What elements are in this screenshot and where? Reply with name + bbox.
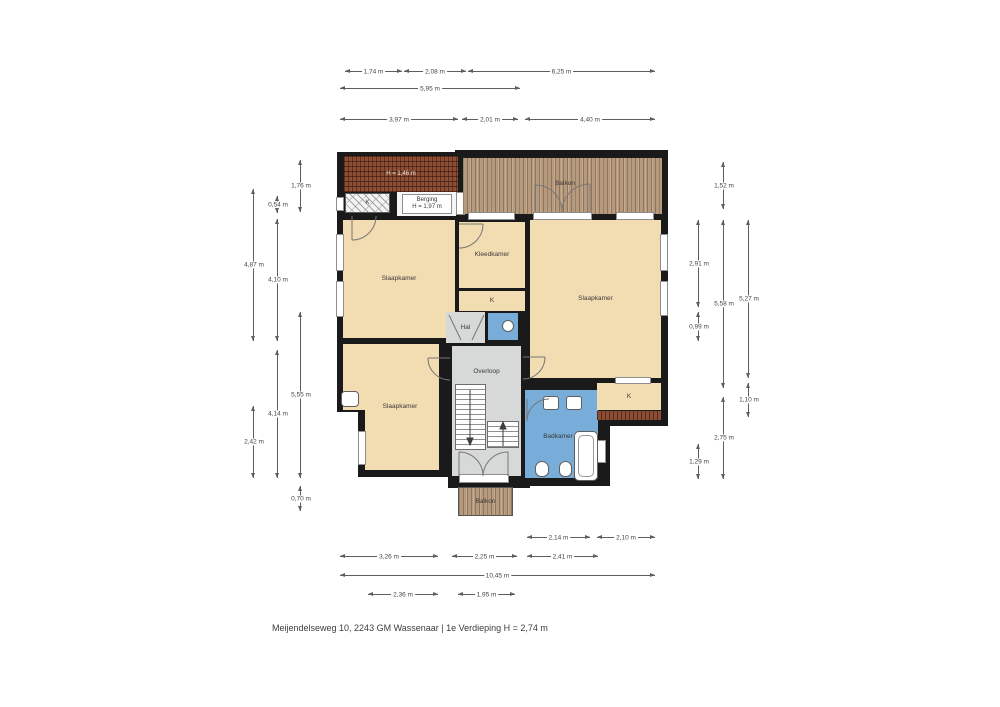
- dimension-label: 4,10 m: [266, 276, 290, 283]
- window-dressing-top: [468, 212, 515, 220]
- dimension-line: 5,58 m: [723, 220, 724, 388]
- dimension-line: 5,95 m: [340, 88, 520, 89]
- balcony-bottom-label: Balkon: [476, 498, 496, 505]
- bedroom-right-label: Slaapkamer: [578, 295, 613, 302]
- dimension-label: 1,10 m: [737, 396, 761, 403]
- dimension-line: 2,10 m: [597, 537, 655, 538]
- hall: Hal: [446, 312, 485, 343]
- bedroom-top-left: Slaapkamer: [343, 220, 455, 338]
- dimension-label: 3,97 m: [387, 116, 411, 123]
- bathtub: [574, 431, 598, 481]
- window-left-lower: [358, 431, 366, 465]
- dimension-label: 1,29 m: [687, 458, 711, 465]
- dimension-line: 2,42 m: [253, 406, 254, 478]
- dimension-label: 2,42 m: [242, 438, 266, 445]
- dimension-line: 2,01 m: [462, 119, 518, 120]
- dimension-line: 1,29 m: [698, 444, 699, 479]
- berging-label-box: Berging H = 1,97 m: [402, 194, 452, 214]
- window-above-closet-right: [615, 377, 651, 384]
- roof-area: H = 1,46 m: [344, 156, 458, 192]
- stair-flight-main: [455, 384, 486, 450]
- floorplan-page: { "footer": "Meijendelseweg 10, 2243 GM …: [0, 0, 1000, 707]
- dimension-line: 2,14 m: [527, 537, 590, 538]
- dimension-line: 1,10 m: [748, 383, 749, 417]
- dimension-label: 2,10 m: [614, 534, 638, 541]
- berging-name: Berging: [417, 197, 438, 205]
- window-right-2: [660, 281, 668, 316]
- window-balcony-top-right: [616, 212, 654, 220]
- dimension-label: 5,58 m: [712, 300, 736, 307]
- dimension-line: 6,25 m: [468, 71, 655, 72]
- dimension-line: 4,10 m: [277, 219, 278, 341]
- dimension-line: 2,25 m: [452, 556, 517, 557]
- roof-height-label: H = 1,46 m: [344, 171, 458, 177]
- dimension-line: 4,87 m: [253, 189, 254, 341]
- dimension-line: 2,08 m: [404, 71, 466, 72]
- closet-top-left-label: K: [365, 199, 369, 206]
- dimension-line: 10,45 m: [340, 575, 655, 576]
- window-left-1: [336, 234, 344, 271]
- dimension-label: 2,14 m: [547, 534, 571, 541]
- dimension-label: 3,26 m: [377, 553, 401, 560]
- dimension-label: 2,75 m: [712, 434, 736, 441]
- dimension-line: 0,54 m: [277, 196, 278, 213]
- balcony-top-label: Balkon: [530, 180, 600, 187]
- dimension-label: 4,87 m: [242, 261, 266, 268]
- dimension-line: 4,14 m: [277, 350, 278, 478]
- sink-bathroom-1: [543, 396, 559, 410]
- bedroom-bottom-left-label: Slaapkamer: [355, 403, 445, 410]
- dimension-label: 4,14 m: [266, 410, 290, 417]
- dimension-label: 2,36 m: [391, 591, 415, 598]
- dimension-label: 1,74 m: [362, 68, 386, 75]
- bedroom-top-left-label: Slaapkamer: [382, 275, 417, 282]
- dimension-label: 0,70 m: [289, 495, 313, 502]
- dimension-line: 2,75 m: [723, 397, 724, 479]
- dimension-label: 2,91 m: [687, 260, 711, 267]
- dimension-label: 0,99 m: [687, 323, 711, 330]
- dimension-line: 0,99 m: [698, 312, 699, 341]
- dimension-label: 5,27 m: [737, 295, 761, 302]
- dimension-label: 2,01 m: [478, 116, 502, 123]
- closet-middle: K: [459, 291, 525, 311]
- window-left-2: [336, 281, 344, 317]
- dimension-label: 2,41 m: [551, 553, 575, 560]
- closet-right: K: [597, 383, 661, 410]
- closet-middle-label: K: [490, 297, 494, 304]
- dimension-line: 1,76 m: [300, 160, 301, 212]
- address-caption: Meijendelseweg 10, 2243 GM Wassenaar | 1…: [272, 623, 548, 633]
- dressing-room: Kleedkamer: [459, 222, 525, 288]
- dimension-label: 2,25 m: [473, 553, 497, 560]
- dimension-label: 2,08 m: [423, 68, 447, 75]
- closet-right-label: K: [627, 393, 631, 400]
- dimension-line: 1,74 m: [345, 71, 402, 72]
- berging-height: H = 1,97 m: [412, 204, 442, 212]
- bidet-bathroom: [559, 461, 572, 477]
- french-door-bottom: [459, 474, 509, 483]
- toilet-wc: [502, 320, 514, 332]
- hall-label: Hal: [461, 324, 471, 331]
- dimension-label: 10,45 m: [484, 572, 512, 579]
- dimension-line: 2,41 m: [527, 556, 598, 557]
- dimension-line: 3,26 m: [340, 556, 438, 557]
- dressing-room-label: Kleedkamer: [475, 251, 510, 258]
- window-right-1: [660, 234, 668, 271]
- dimension-line: 3,97 m: [340, 119, 458, 120]
- dimension-label: 1,76 m: [289, 182, 313, 189]
- roof-strip-right: [597, 411, 661, 420]
- dimension-line: 0,70 m: [300, 486, 301, 511]
- dimension-line: 4,40 m: [525, 119, 655, 120]
- bedroom-right: Slaapkamer: [530, 220, 661, 378]
- dimension-label: 6,25 m: [550, 68, 574, 75]
- dimension-line: 2,91 m: [698, 220, 699, 307]
- french-door-top: [533, 212, 592, 220]
- window-left-berging: [336, 197, 344, 211]
- landing-label: Overloop: [452, 368, 521, 375]
- dimension-label: 5,95 m: [418, 85, 442, 92]
- window-bathroom-right: [597, 440, 606, 463]
- dimension-label: 0,54 m: [266, 201, 290, 208]
- dimension-line: 1,52 m: [723, 162, 724, 209]
- dimension-line: 2,36 m: [368, 594, 438, 595]
- dimension-label: 4,40 m: [578, 116, 602, 123]
- closet-top-left: K: [345, 193, 390, 213]
- dimension-line: 5,27 m: [748, 220, 749, 378]
- dimension-line: 1,95 m: [458, 594, 515, 595]
- balcony-bottom: Balkon: [458, 487, 513, 516]
- dimension-label: 1,95 m: [475, 591, 499, 598]
- dimension-label: 1,52 m: [712, 182, 736, 189]
- sink-bedroom: [341, 391, 359, 407]
- bedroom-bottom-left-lower: [365, 408, 439, 470]
- stair-flight-side: [487, 421, 519, 448]
- toilet-bathroom: [535, 461, 549, 477]
- sink-bathroom-2: [566, 396, 582, 410]
- dimension-label: 5,55 m: [289, 391, 313, 398]
- bathtub-inner: [578, 435, 594, 477]
- dimension-line: 5,55 m: [300, 312, 301, 478]
